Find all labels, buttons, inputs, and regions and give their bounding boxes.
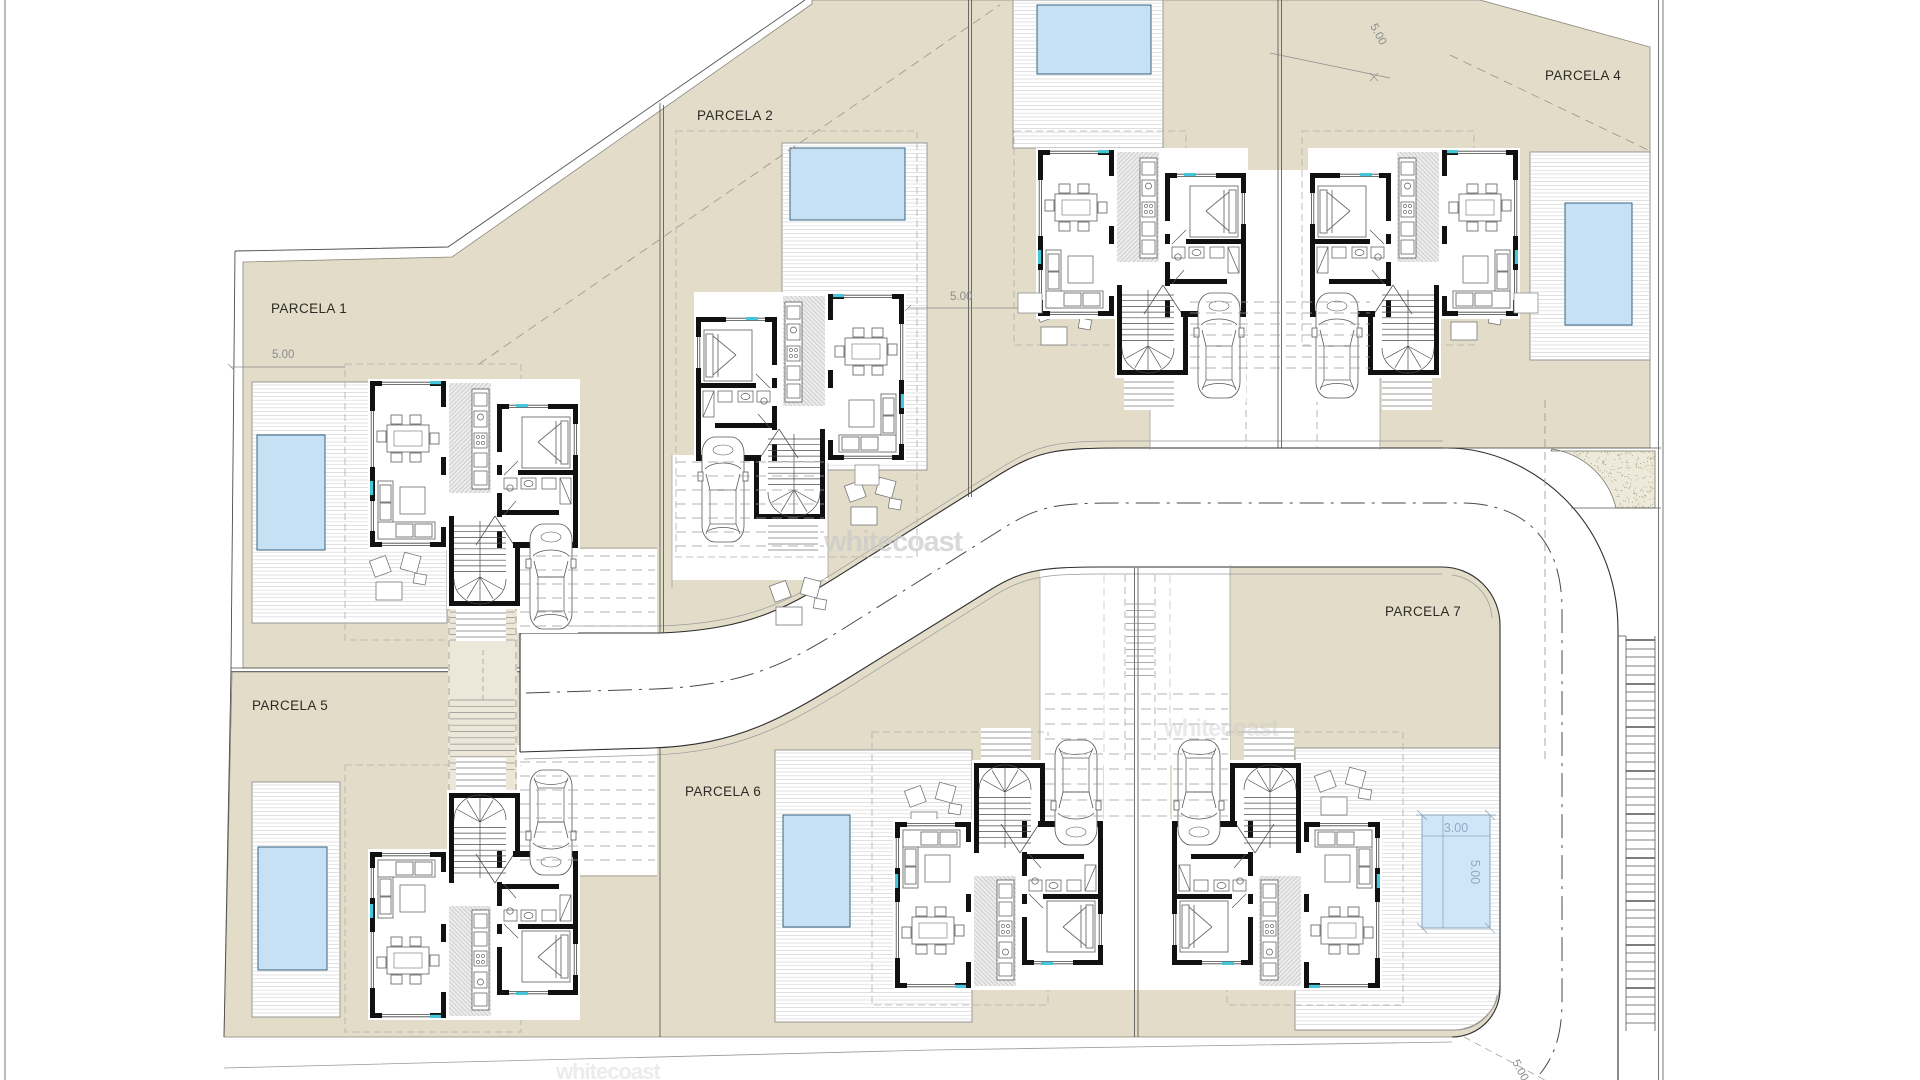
svg-text:PARCELA 2: PARCELA 2 [697, 108, 773, 123]
svg-text:PARCELA 6: PARCELA 6 [685, 784, 761, 799]
svg-text:whitecoast: whitecoast [555, 1059, 661, 1080]
svg-text:whitecoast: whitecoast [1163, 715, 1279, 742]
svg-text:PARCELA 4: PARCELA 4 [1545, 68, 1621, 83]
svg-text:whitecoast: whitecoast [823, 526, 963, 558]
svg-text:5.00: 5.00 [1468, 860, 1482, 884]
svg-text:3.00: 3.00 [1444, 821, 1468, 835]
svg-text:5.00: 5.00 [272, 349, 294, 361]
svg-text:5.00: 5.00 [950, 291, 972, 303]
svg-text:PARCELA 5: PARCELA 5 [252, 698, 328, 713]
svg-text:PARCELA 1: PARCELA 1 [271, 301, 347, 316]
svg-text:PARCELA 7: PARCELA 7 [1385, 604, 1461, 619]
